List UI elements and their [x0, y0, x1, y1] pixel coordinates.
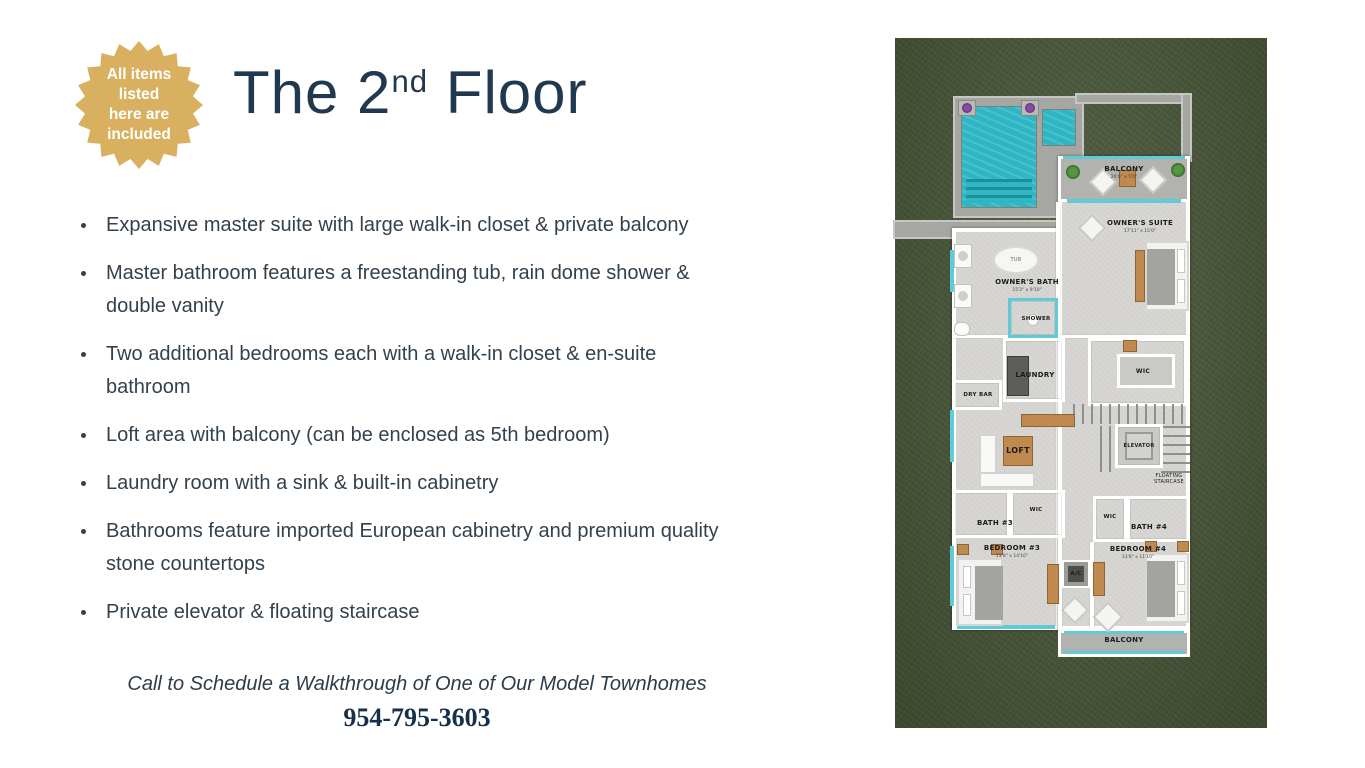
toilet: [954, 322, 970, 336]
bullet-icon: [81, 529, 86, 534]
site-wall-top: [1077, 95, 1190, 102]
bathtub: TUB: [993, 246, 1039, 274]
room-label-laundry: LAUNDRY: [1015, 371, 1054, 379]
room-label-owners-bath: OWNER'S BATH: [995, 278, 1059, 286]
bullet-icon: [81, 352, 86, 357]
desk: [1093, 562, 1105, 596]
list-item: Bathrooms feature imported European cabi…: [78, 515, 723, 581]
list-item: Laundry room with a sink & built-in cabi…: [78, 467, 723, 500]
room-dim-balcony-top: 20'0" x 5'0": [1111, 175, 1137, 180]
window: [950, 410, 954, 462]
room-label-bath4: BATH #4: [1131, 523, 1167, 531]
bullet-icon: [81, 271, 86, 276]
feature-text: Laundry room with a sink & built-in cabi…: [106, 472, 498, 494]
list-item: Loft area with balcony (can be enclosed …: [78, 419, 723, 452]
potted-plant: [1066, 165, 1080, 179]
staircase-right-run: [1161, 426, 1190, 476]
nightstand: [957, 544, 969, 555]
feature-text: Private elevator & floating staircase: [106, 601, 420, 623]
pool-steps: [966, 179, 1032, 203]
bench: [1021, 414, 1075, 427]
room-label-bath3: BATH #3: [977, 519, 1013, 527]
badge-line: All items: [107, 65, 172, 85]
staircase-left-run: [1100, 426, 1115, 472]
cta-text: Call to Schedule a Walkthrough of One of…: [55, 673, 779, 696]
bullet-icon: [81, 481, 86, 486]
list-item: Private elevator & floating staircase: [78, 596, 723, 629]
bath3-room: [952, 490, 1010, 538]
balcony-bottom-rail: [1064, 651, 1184, 654]
bullet-icon: [81, 610, 86, 615]
staircase-upper-run: [1073, 404, 1190, 424]
room-label-owners-suite: OWNER'S SUITE: [1107, 219, 1173, 227]
room-label-tub: TUB: [1010, 257, 1021, 263]
badge-text: All items listed here are included: [75, 40, 203, 170]
spa: [1042, 109, 1076, 146]
bullet-icon: [81, 433, 86, 438]
room-label-bedroom4: BEDROOM #4: [1110, 545, 1166, 553]
bed-bedroom4: [1145, 553, 1189, 623]
room-label-wic-master: WIC: [1136, 368, 1150, 375]
phone-number: 954-795-3603: [55, 703, 779, 733]
desk: [1047, 564, 1059, 604]
room-label-shower: SHOWER: [1021, 316, 1050, 322]
room-dim-bedroom4: 13'8" x 11'10": [1122, 555, 1154, 560]
included-badge: All items listed here are included: [75, 40, 203, 170]
feature-text: Master bathroom features a freestanding …: [106, 262, 690, 317]
bench: [1135, 250, 1145, 302]
title-suffix: Floor: [428, 59, 587, 126]
balcony-bottom-rail: [1064, 631, 1184, 634]
title-superscript: nd: [391, 64, 428, 99]
window: [950, 546, 954, 606]
loft-sofa: [979, 472, 1035, 488]
room-label-balcony-bottom: BALCONY: [1104, 636, 1143, 644]
badge-line: included: [107, 125, 171, 145]
bench: [1123, 340, 1137, 352]
room-label-wic4: WIC: [1103, 514, 1116, 520]
badge-line: here are: [109, 105, 169, 125]
bullet-icon: [81, 223, 86, 228]
list-item: Two additional bedrooms each with a walk…: [78, 338, 723, 404]
room-label-elevator: ELEVATOR: [1124, 443, 1155, 449]
planter-flowers: [958, 100, 976, 116]
feature-list: Expansive master suite with large walk-i…: [78, 209, 768, 644]
room-label-bedroom3: BEDROOM #3: [984, 544, 1040, 552]
feature-text: Expansive master suite with large walk-i…: [106, 214, 688, 236]
room-label-wic3: WIC: [1029, 507, 1042, 513]
room-dim-bedroom3: 13'8" x 14'10": [996, 554, 1028, 559]
bed-owners-suite: [1145, 241, 1189, 311]
feature-text: Bathrooms feature imported European cabi…: [106, 520, 719, 575]
nightstand: [1177, 541, 1189, 552]
feature-text: Loft area with balcony (can be enclosed …: [106, 424, 610, 446]
pool: [961, 106, 1037, 208]
owners-suite-window: [1067, 199, 1181, 203]
bed-bedroom3: [957, 558, 1003, 626]
list-item: Expansive master suite with large walk-i…: [78, 209, 723, 242]
vanity-sink: [954, 244, 972, 268]
floorplan-image: TUB BALCONY 20'0" x 5'0" OWNER'S SUITE 1…: [895, 38, 1267, 728]
badge-line: listed: [119, 85, 159, 105]
room-dim-owners-bath: 15'2" x 9'10": [1012, 288, 1041, 293]
room-label-dry-bar: DRY BAR: [963, 392, 992, 398]
page-title: The 2nd Floor: [233, 58, 588, 127]
potted-plant: [1171, 163, 1185, 177]
vanity-sink: [954, 284, 972, 308]
room-dim-owners-suite: 17'11" x 15'0": [1124, 229, 1156, 234]
planter-flowers: [1021, 100, 1039, 116]
bath4-room: [1127, 496, 1190, 542]
site-wall-right: [1183, 95, 1190, 160]
slide: { "badge": { "lines": ["All items", "lis…: [0, 0, 1365, 768]
balcony-top-rail: [1063, 156, 1185, 159]
wic3-room: [1010, 490, 1065, 538]
list-item: Master bathroom features a freestanding …: [78, 257, 723, 323]
room-label-ac: A/C: [1070, 571, 1081, 577]
title-prefix: The 2: [233, 59, 391, 126]
room-label-loft: LOFT: [1006, 446, 1030, 455]
room-label-floating-staircase: FLOATING STAIRCASE: [1149, 473, 1189, 486]
feature-text: Two additional bedrooms each with a walk…: [106, 343, 656, 398]
room-label-balcony-top: BALCONY: [1104, 165, 1143, 173]
